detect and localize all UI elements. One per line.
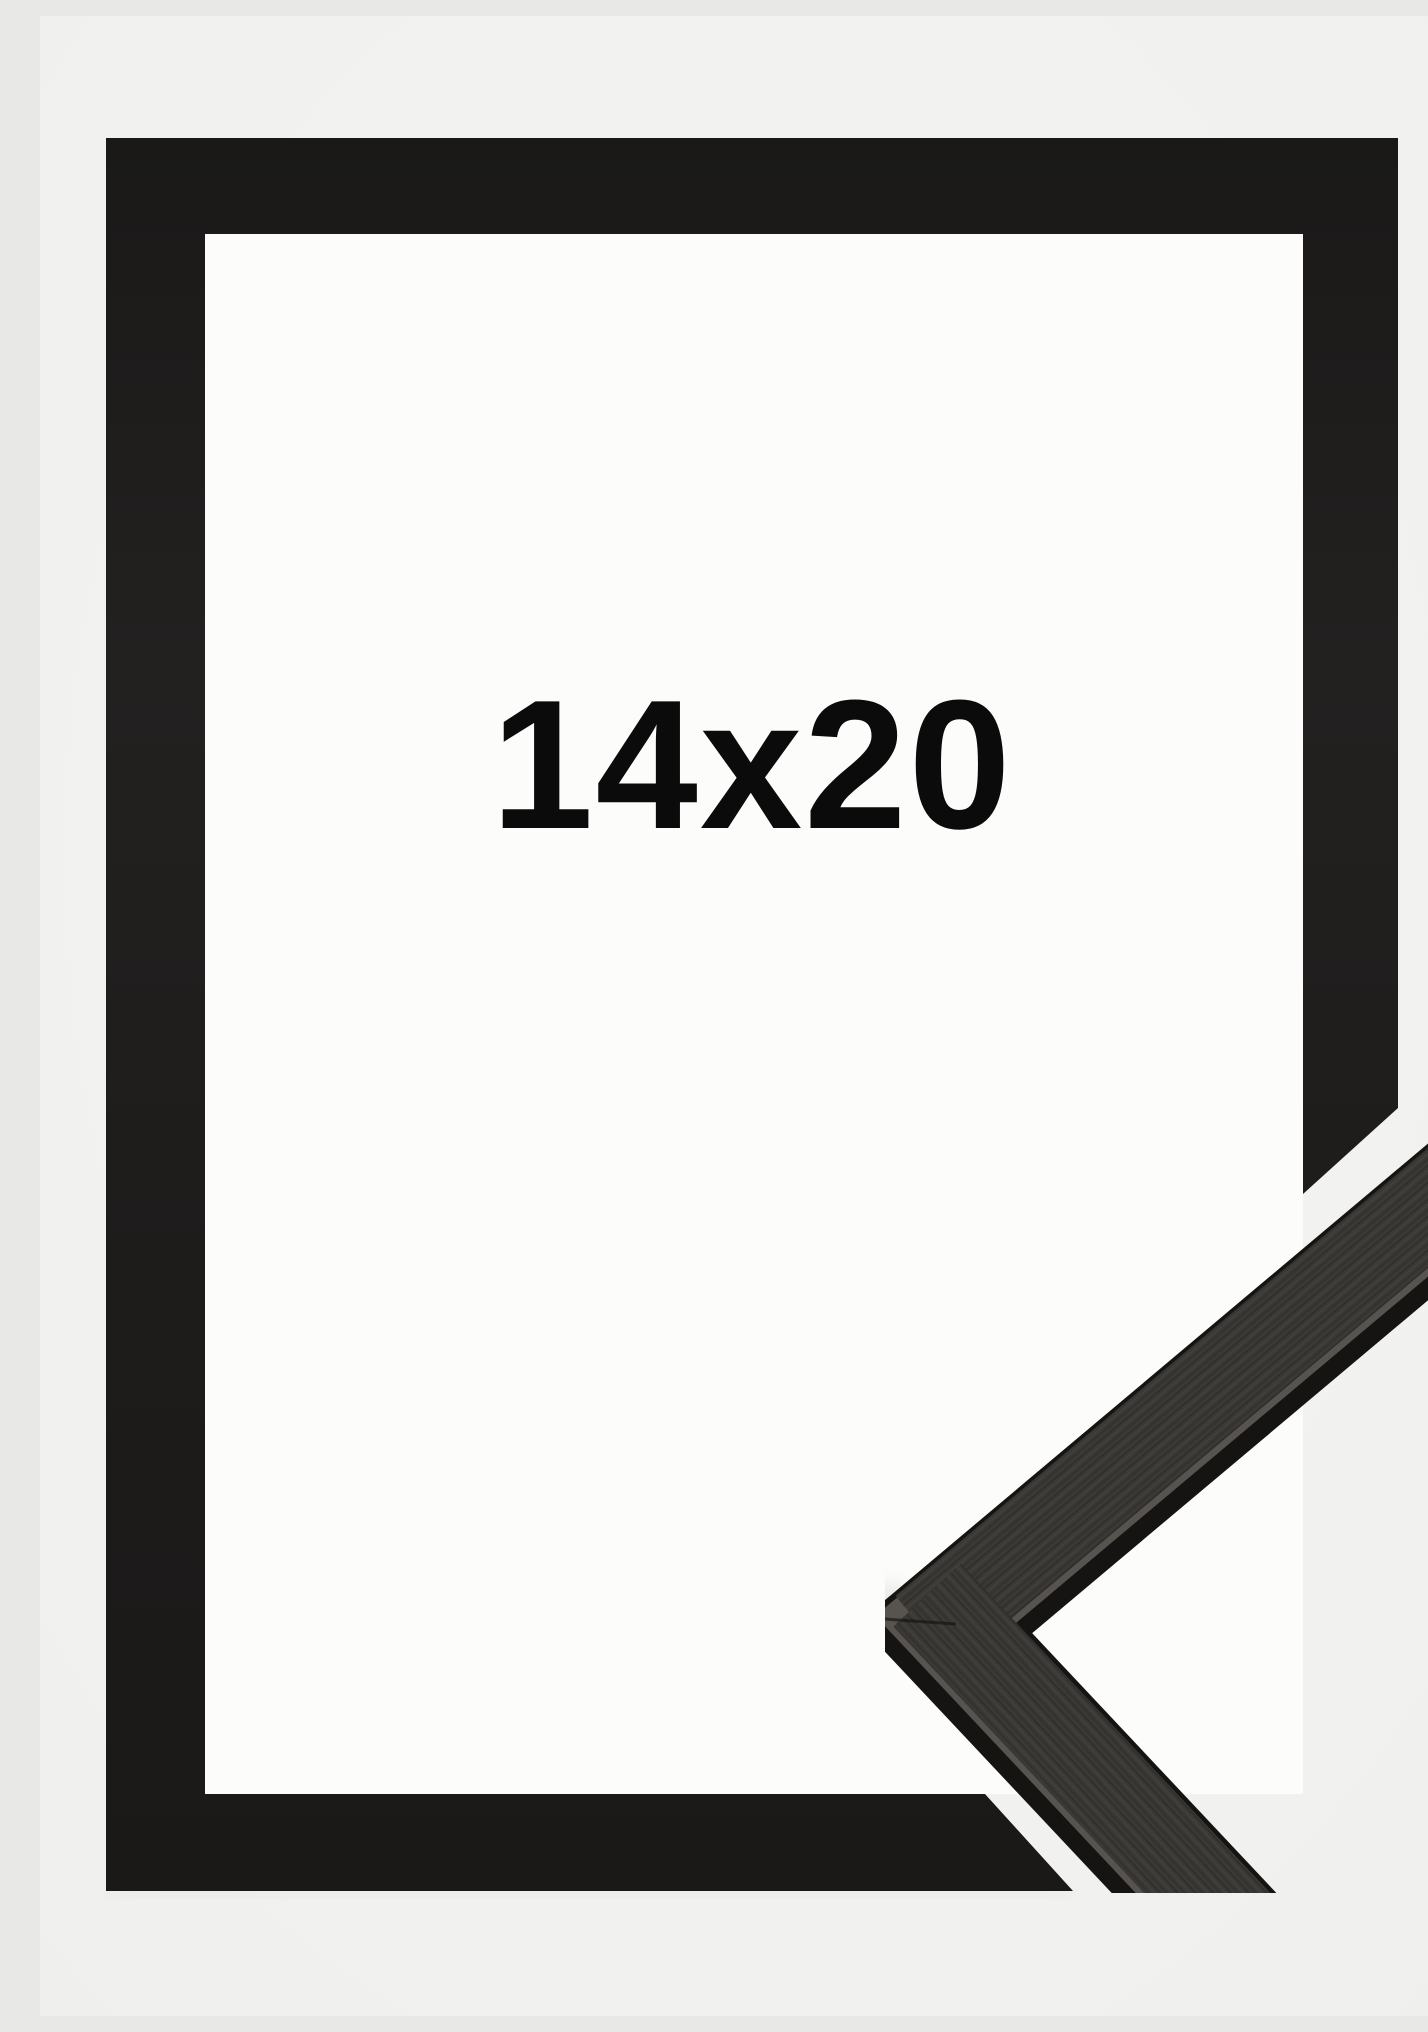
- frame-opening-mat: [205, 234, 1303, 1794]
- size-label: 14x20: [491, 661, 1013, 867]
- product-image: 14x20: [40, 16, 1428, 2016]
- frame-product-photo: 14x20: [40, 16, 1428, 2016]
